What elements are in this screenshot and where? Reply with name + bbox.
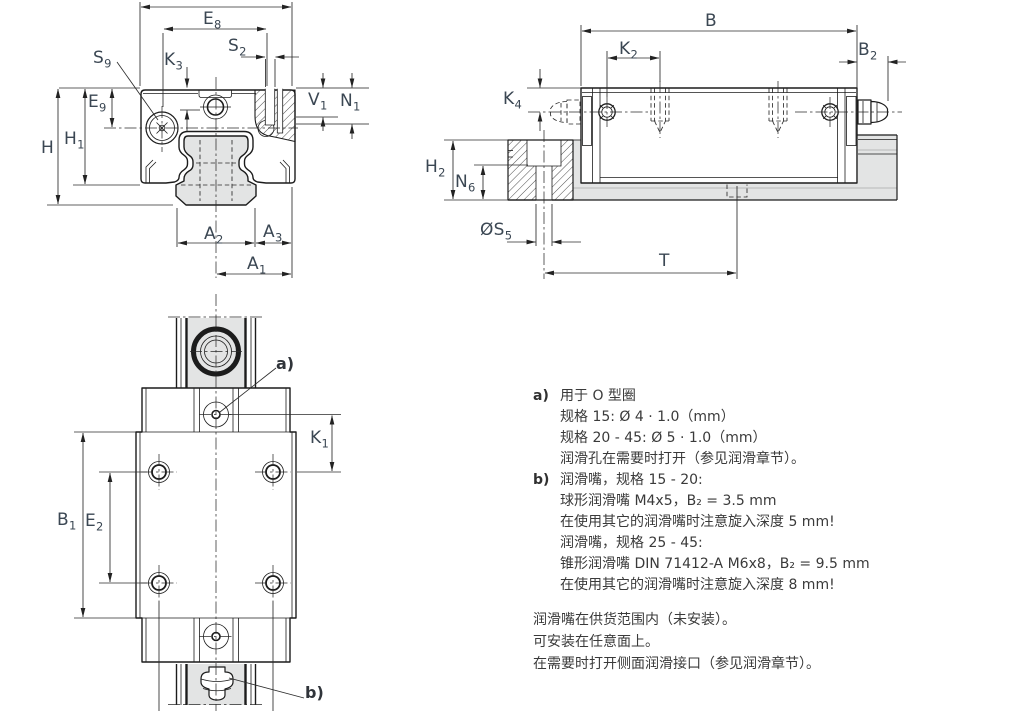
dim-label-v1: V1: [308, 90, 328, 112]
callout-a-marker: a): [276, 354, 294, 373]
note-b-line: 在使用其它的润滑嘴时注意旋入深度 8 mm!: [560, 575, 870, 596]
dim-label-b: B: [705, 11, 717, 33]
note-b-marker: b): [533, 470, 560, 596]
note-a-line: 润滑孔在需要时打开（参见润滑章节）。: [560, 449, 805, 470]
dim-label-k4: K4: [503, 89, 522, 111]
technical-drawing-page: E8 S2 S9 K3 V1 N1 E9 H1 H A2 A3 A1 B K2 …: [0, 0, 1035, 712]
carriage-body-side: [581, 88, 857, 183]
note-a-line: 用于 O 型圈: [560, 386, 805, 407]
dim-label-b1: B1: [57, 510, 77, 532]
dim-label-t: T: [659, 251, 670, 273]
note-a-line: 规格 15: Ø 4 · 1.0（mm）: [560, 407, 805, 428]
dim-label-s2: S2: [228, 36, 247, 58]
dim-label-h1: H1: [64, 129, 85, 151]
dim-label-e8: E8: [203, 9, 222, 31]
note-b-line: 球形润滑嘴 M4x5，B₂ = 3.5 mm: [560, 491, 870, 512]
note-b-line: 锥形润滑嘴 DIN 71412-A M6x8，B₂ = 9.5 mm: [560, 554, 870, 575]
note-a-line: 规格 20 - 45: Ø 5 · 1.0（mm）: [560, 428, 805, 449]
dim-label-k2: K2: [619, 39, 638, 61]
note-a-marker: a): [533, 386, 560, 470]
dim-label-k1: K1: [310, 428, 329, 450]
dim-label-e9: E9: [88, 92, 107, 114]
note-footer-line: 可安装在任意面上。: [533, 631, 1013, 653]
side-view: [444, 25, 906, 279]
note-b-line: 在使用其它的润滑嘴时注意旋入深度 5 mm!: [560, 512, 870, 533]
dim-label-k3: K3: [164, 50, 183, 72]
dim-label-s9: S9: [93, 48, 112, 70]
dim-label-a2: A2: [204, 224, 224, 246]
dim-label-a3: A3: [263, 222, 283, 244]
note-b: b) 润滑嘴，规格 15 - 20: 球形润滑嘴 M4x5，B₂ = 3.5 m…: [533, 470, 1013, 596]
rail-section-block: [508, 130, 573, 279]
dim-label-s5: ØS5: [480, 220, 512, 242]
notes-panel: a) 用于 O 型圈 规格 15: Ø 4 · 1.0（mm） 规格 20 - …: [533, 386, 1013, 675]
note-footer-line: 在需要时打开侧面润滑接口（参见润滑章节）。: [533, 653, 1013, 675]
callout-b-marker: b): [305, 683, 324, 702]
dim-label-n6: N6: [455, 172, 476, 194]
rail-top-segment: [168, 317, 263, 388]
dim-label-h2: H2: [425, 157, 446, 179]
note-b-line: 润滑嘴，规格 15 - 20:: [560, 470, 870, 491]
note-a: a) 用于 O 型圈 规格 15: Ø 4 · 1.0（mm） 规格 20 - …: [533, 386, 1013, 470]
dim-label-e2: E2: [85, 511, 104, 533]
dim-label-n1: N1: [340, 91, 361, 113]
dim-label-a1: A1: [247, 254, 267, 276]
plan-view: [74, 294, 341, 711]
note-footer: 润滑嘴在供货范围内（未安装）。 可安装在任意面上。 在需要时打开侧面润滑接口（参…: [533, 609, 1013, 675]
dim-label-h: H: [41, 138, 54, 160]
dim-label-b2: B2: [858, 40, 878, 62]
note-footer-line: 润滑嘴在供货范围内（未安装）。: [533, 609, 1013, 631]
rail-bottom-segment: [168, 664, 263, 705]
note-b-line: 润滑嘴，规格 25 - 45:: [560, 533, 870, 554]
